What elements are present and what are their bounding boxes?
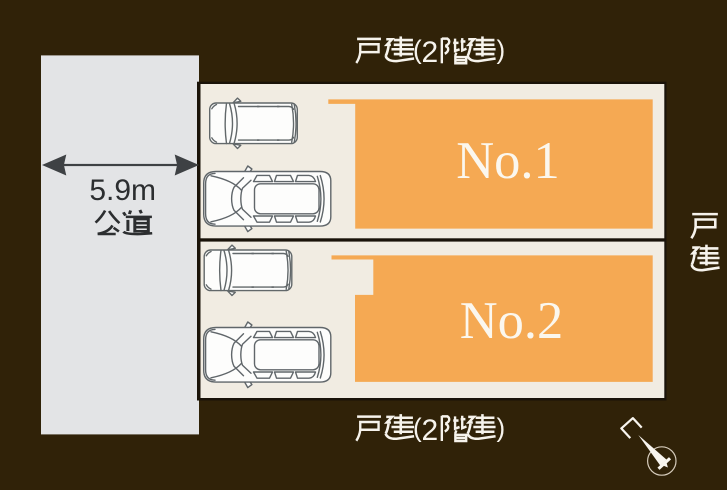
svg-text:2: 2	[422, 36, 439, 69]
svg-text:): )	[497, 413, 506, 443]
svg-text:No.1: No.1	[456, 132, 560, 190]
svg-text:5.9m: 5.9m	[89, 174, 156, 207]
svg-text:): )	[497, 35, 506, 65]
svg-text:No.2: No.2	[460, 292, 564, 350]
svg-text:2: 2	[422, 414, 439, 447]
